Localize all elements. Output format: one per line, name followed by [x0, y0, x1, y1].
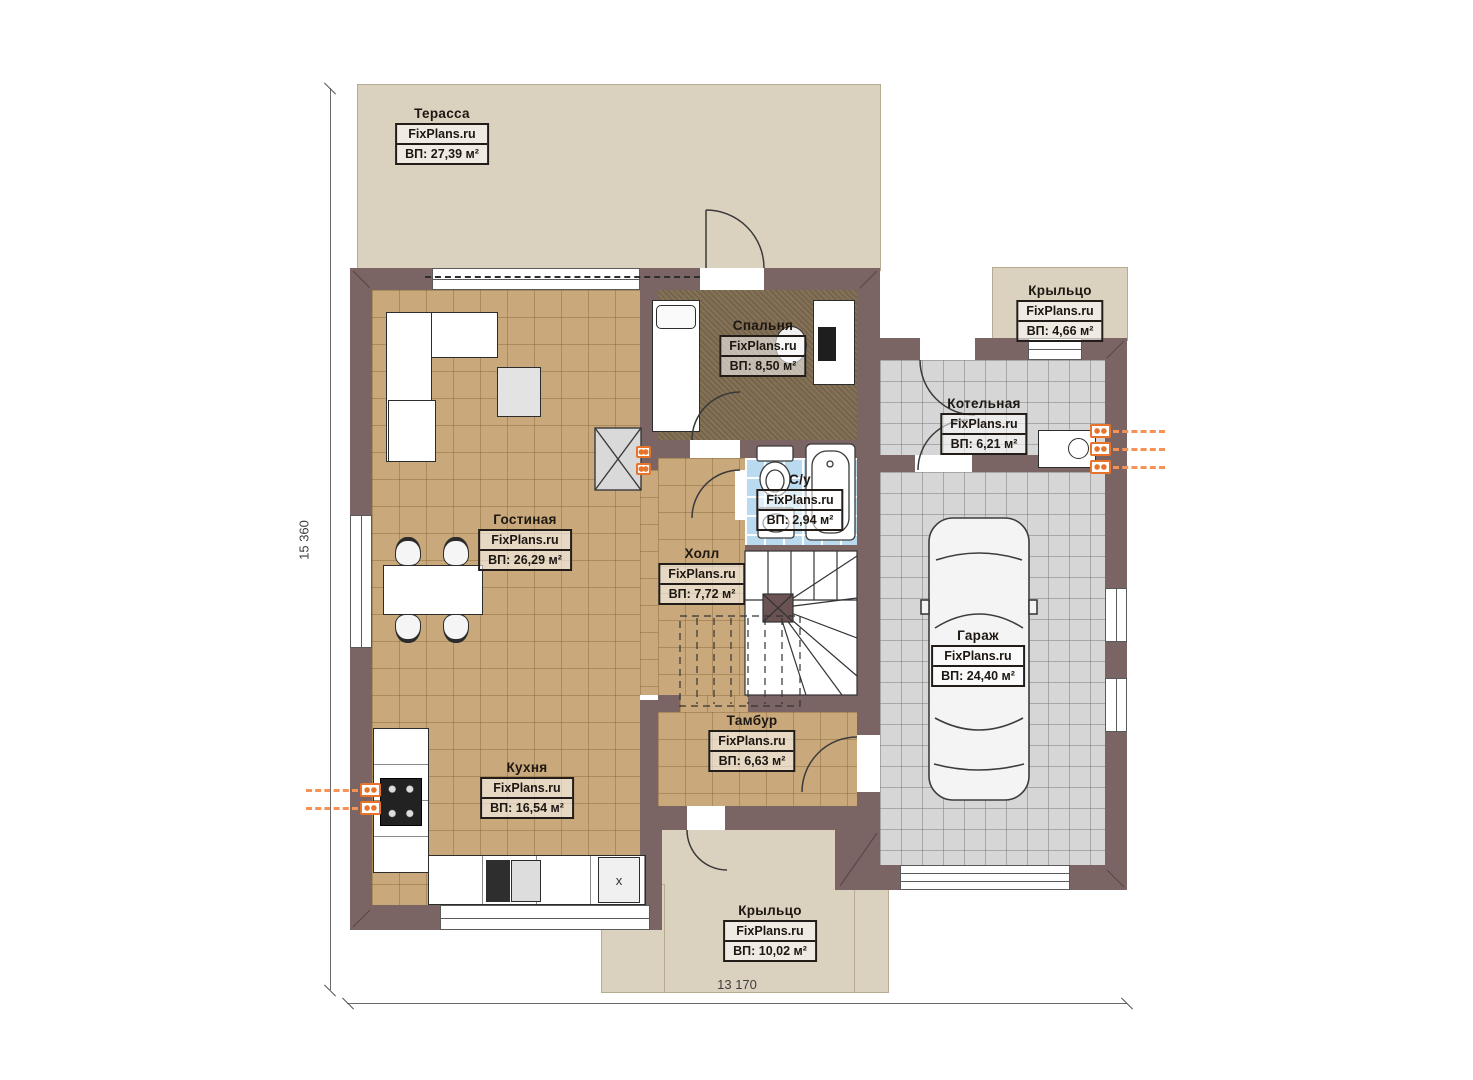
room-brand: FixPlans.ru: [933, 647, 1023, 665]
dining-chair-1: [395, 537, 421, 566]
room-info-box: FixPlans.ru ВП: 27,39 м²: [395, 123, 489, 165]
room-label-hall: Холл FixPlans.ru ВП: 7,72 м²: [658, 546, 745, 605]
dining-chair-2: [443, 537, 469, 566]
kitchen-sink: [511, 860, 541, 902]
staircase: [745, 551, 857, 695]
room-brand: FixPlans.ru: [725, 922, 815, 940]
computer-monitor: [818, 327, 836, 361]
room-area: ВП: 16,54 м²: [482, 797, 572, 817]
radiator-boiler-dash-1: [1113, 430, 1165, 433]
porch-bottom-right-ext: [855, 883, 888, 992]
radiator-living-1: [636, 446, 651, 458]
room-label-porch-top: Крыльцо FixPlans.ru ВП: 4,66 м²: [1016, 283, 1103, 342]
wall-corner-block: [835, 828, 880, 890]
room-info-box: FixPlans.ru ВП: 10,02 м²: [723, 920, 817, 962]
dining-table: [383, 565, 483, 615]
room-name: Гараж: [957, 628, 999, 643]
dining-chair-3: [395, 614, 421, 643]
window-garage-right-1: [1105, 588, 1127, 642]
room-name: Крыльцо: [1028, 283, 1092, 298]
room-info-box: FixPlans.ru ВП: 24,40 м²: [931, 645, 1025, 687]
room-label-garage: Гараж FixPlans.ru ВП: 24,40 м²: [931, 628, 1025, 687]
room-name: Терасса: [414, 106, 470, 121]
room-brand: FixPlans.ru: [480, 531, 570, 549]
room-info-box: FixPlans.ru ВП: 4,66 м²: [1016, 300, 1103, 342]
dim-line-vertical: [330, 88, 331, 990]
room-name: Тамбур: [727, 713, 778, 728]
boiler-dial: [1068, 438, 1089, 459]
room-info-box: FixPlans.ru ВП: 26,29 м²: [478, 529, 572, 571]
room-info-box: FixPlans.ru ВП: 2,94 м²: [756, 489, 843, 531]
room-brand: FixPlans.ru: [397, 125, 487, 143]
room-brand: FixPlans.ru: [758, 491, 841, 509]
radiator-boiler-dash-3: [1113, 466, 1165, 469]
room-label-vestibule: Тамбур FixPlans.ru ВП: 6,63 м²: [708, 713, 795, 772]
room-info-box: FixPlans.ru ВП: 6,21 м²: [940, 413, 1027, 455]
room-area: ВП: 10,02 м²: [725, 940, 815, 960]
room-label-bedroom: Спальня FixPlans.ru ВП: 8,50 м²: [719, 318, 806, 377]
room-name: Холл: [684, 546, 719, 561]
wall-bath-stairs: [745, 545, 857, 551]
radiator-kitchen-1: [360, 783, 381, 797]
bed-pillow: [656, 305, 696, 329]
room-brand: FixPlans.ru: [1018, 302, 1101, 320]
wall-bottom-vestibule: [640, 806, 857, 830]
door-gap-terrace: [700, 268, 764, 290]
room-info-box: FixPlans.ru ВП: 16,54 м²: [480, 777, 574, 819]
room-label-bathroom: С/у FixPlans.ru ВП: 2,94 м²: [756, 472, 843, 531]
room-brand: FixPlans.ru: [942, 415, 1025, 433]
room-brand: FixPlans.ru: [660, 565, 743, 583]
room-area: ВП: 24,40 м²: [933, 665, 1023, 685]
window-living-left: [350, 515, 372, 648]
room-area: ВП: 6,21 м²: [942, 433, 1025, 453]
stove: [380, 778, 422, 826]
kitchen-x-label: x: [616, 873, 623, 888]
floor-stair-opening: [680, 695, 748, 712]
room-info-box: FixPlans.ru ВП: 8,50 м²: [719, 335, 806, 377]
room-area: ВП: 8,50 м²: [721, 355, 804, 375]
room-area: ВП: 27,39 м²: [397, 143, 487, 163]
window-living-top: [432, 268, 640, 290]
dim-label-height: 15 360: [297, 520, 312, 560]
garage-gate: [900, 865, 1070, 890]
room-label-terrace: Терасса FixPlans.ru ВП: 27,39 м²: [395, 106, 489, 165]
radiator-boiler-dash-2: [1113, 448, 1165, 451]
room-area: ВП: 6,63 м²: [710, 750, 793, 770]
room-label-living: Гостиная FixPlans.ru ВП: 26,29 м²: [478, 512, 572, 571]
room-name: Спальня: [733, 318, 793, 333]
floor-plan: x: [0, 0, 1473, 1080]
room-name: Крыльцо: [738, 903, 802, 918]
room-name: С/у: [789, 472, 811, 487]
room-name: Кухня: [507, 760, 548, 775]
room-name: Котельная: [947, 396, 1020, 411]
coffee-table: [497, 367, 541, 417]
dim-line-horizontal: [347, 1003, 1127, 1004]
sofa-chaise: [388, 400, 436, 462]
room-info-box: FixPlans.ru ВП: 7,72 м²: [658, 563, 745, 605]
radiator-kitchen-dash-1: [306, 789, 358, 792]
room-area: ВП: 7,72 м²: [660, 583, 743, 603]
door-gap-bedroom: [690, 440, 740, 458]
dim-label-width: 13 170: [717, 977, 757, 992]
window-kitchen-bottom: [440, 905, 650, 930]
radiator-kitchen-2: [360, 801, 381, 815]
dining-chair-4: [443, 614, 469, 643]
radiator-kitchen-dash-2: [306, 807, 358, 810]
wall-bedroom-south: [658, 440, 857, 458]
floor-living-hall-passage: [640, 470, 658, 695]
room-name: Гостиная: [493, 512, 556, 527]
room-label-porch-bottom: Крыльцо FixPlans.ru ВП: 10,02 м²: [723, 903, 817, 962]
room-brand: FixPlans.ru: [482, 779, 572, 797]
door-gap-entrance: [687, 806, 725, 830]
door-gap-bathroom: [735, 470, 745, 520]
radiator-boiler-1: [1090, 424, 1111, 438]
radiator-boiler-3: [1090, 460, 1111, 474]
radiator-boiler-2: [1090, 442, 1111, 456]
door-gap-boiler-garage: [915, 455, 972, 472]
room-info-box: FixPlans.ru ВП: 6,63 м²: [708, 730, 795, 772]
window-garage-right-2: [1105, 678, 1127, 732]
room-brand: FixPlans.ru: [721, 337, 804, 355]
door-gap-vestibule-garage: [857, 735, 880, 792]
room-area: ВП: 2,94 м²: [758, 509, 841, 529]
terrace-overhang-line: [425, 276, 700, 278]
wall-hall-vestibule-e: [748, 695, 857, 712]
room-brand: FixPlans.ru: [710, 732, 793, 750]
room-area: ВП: 26,29 м²: [480, 549, 570, 569]
kitchen-appliance: [486, 860, 510, 902]
radiator-living-2: [636, 463, 651, 475]
kitchen-x-cabinet: x: [598, 857, 640, 903]
door-gap-porch-boiler: [920, 338, 975, 360]
room-label-boiler: Котельная FixPlans.ru ВП: 6,21 м²: [940, 396, 1027, 455]
room-label-kitchen: Кухня FixPlans.ru ВП: 16,54 м²: [480, 760, 574, 819]
room-area: ВП: 4,66 м²: [1018, 320, 1101, 340]
